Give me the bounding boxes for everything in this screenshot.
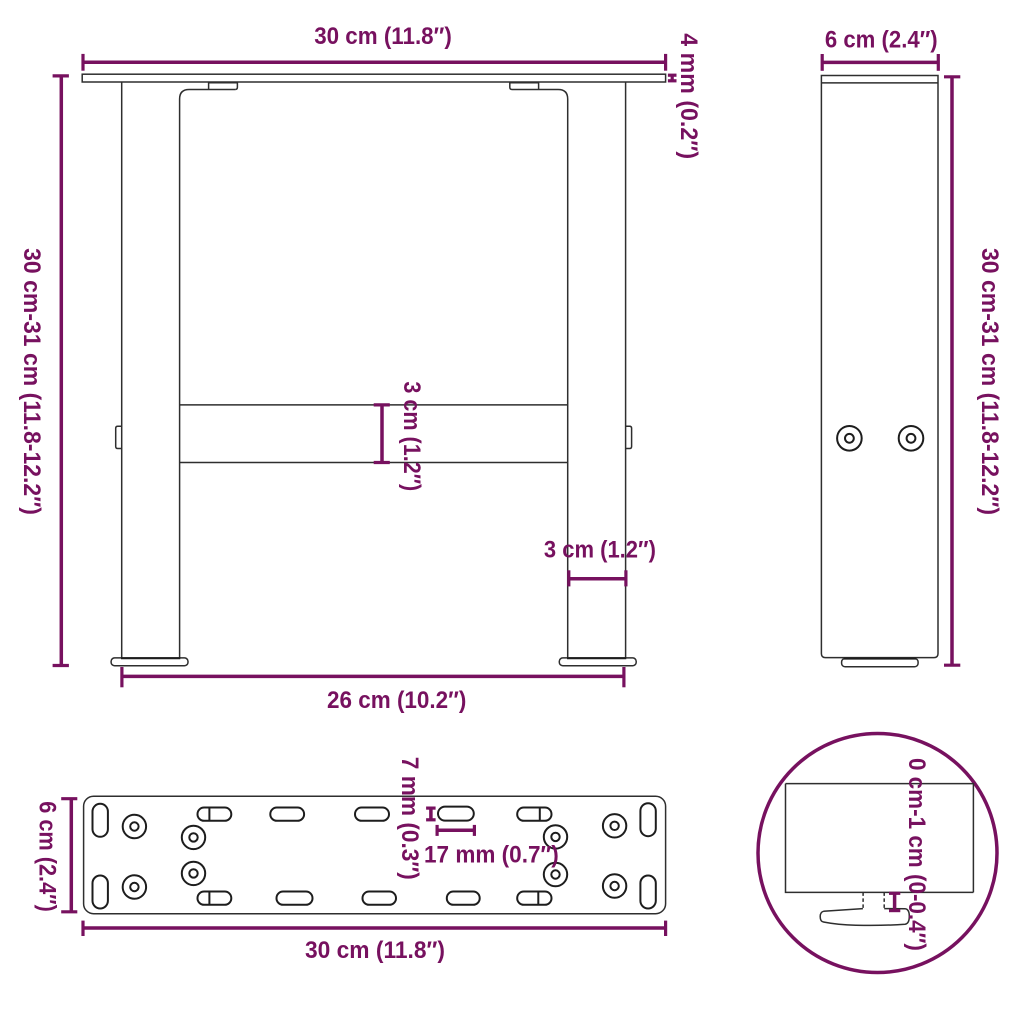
svg-text:4 mm (0.2″): 4 mm (0.2″)	[675, 33, 702, 159]
svg-text:6 cm (2.4″): 6 cm (2.4″)	[33, 801, 60, 912]
svg-text:30 cm-31 cm (11.8-12.2″): 30 cm-31 cm (11.8-12.2″)	[18, 248, 45, 515]
svg-text:26 cm (10.2″): 26 cm (10.2″)	[327, 687, 466, 714]
svg-text:3 cm (1.2″): 3 cm (1.2″)	[398, 381, 425, 491]
svg-text:3 cm (1.2″): 3 cm (1.2″)	[544, 537, 656, 564]
svg-text:30 cm (11.8″): 30 cm (11.8″)	[314, 23, 452, 50]
svg-text:30 cm-31 cm (11.8-12.2″): 30 cm-31 cm (11.8-12.2″)	[976, 248, 1003, 515]
svg-text:30 cm (11.8″): 30 cm (11.8″)	[305, 937, 445, 964]
svg-text:6 cm (2.4″): 6 cm (2.4″)	[825, 26, 938, 53]
svg-text:17 mm (0.7″): 17 mm (0.7″)	[424, 841, 559, 868]
svg-text:0 cm-1 cm (0-0.4″): 0 cm-1 cm (0-0.4″)	[903, 758, 930, 951]
svg-text:7 mm (0.3″): 7 mm (0.3″)	[396, 757, 423, 880]
